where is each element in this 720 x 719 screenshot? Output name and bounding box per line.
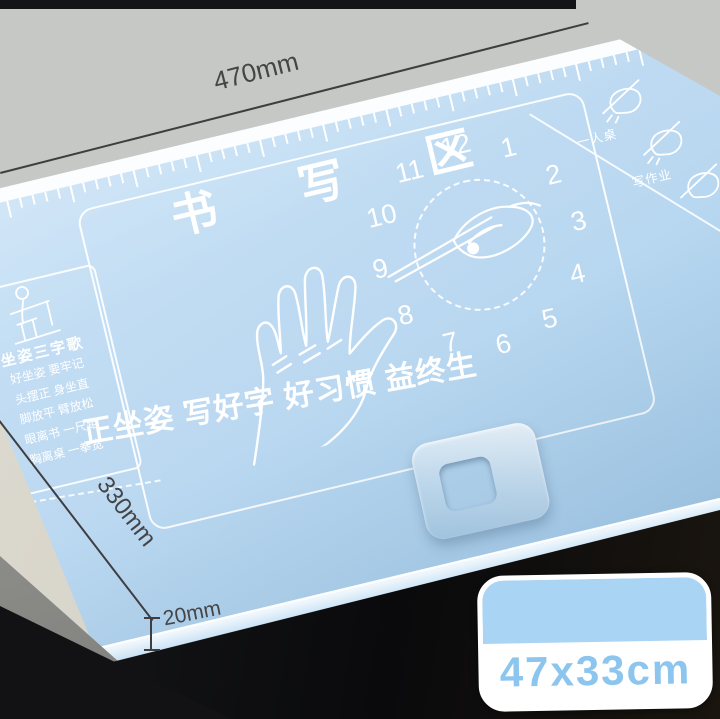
width-dimension-label: 470mm (194, 42, 318, 102)
pen-grip-icon-1 (592, 72, 657, 128)
clock-number: 5 (530, 300, 570, 337)
clock-number: 6 (483, 325, 523, 362)
scene: 书 写 区 123456789101112 (0, 0, 720, 719)
mat-clip-hole (437, 455, 498, 513)
clock-number: 12 (436, 127, 476, 164)
lip-dimension-line (150, 617, 152, 651)
size-badge-label: 47x33cm (483, 645, 708, 697)
size-badge-swatch (482, 577, 707, 644)
pen-grip-icon-3 (670, 156, 720, 212)
clock-number: 1 (488, 128, 528, 165)
pen-grip-icon-2 (633, 114, 698, 170)
clock-number: 11 (389, 152, 429, 189)
corner-label-2: 写作业 (630, 163, 674, 191)
size-badge: 47x33cm (477, 572, 713, 712)
